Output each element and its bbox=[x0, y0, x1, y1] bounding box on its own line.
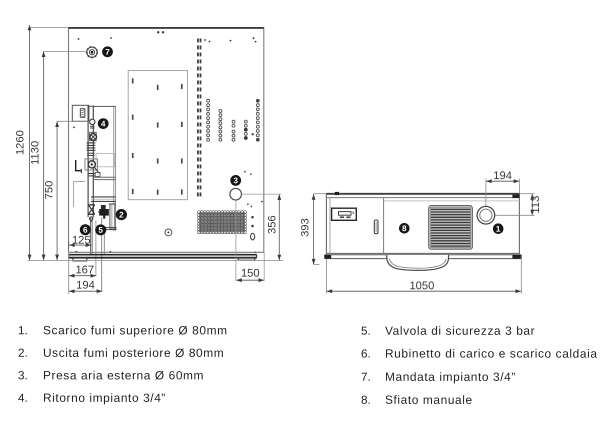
svg-text:Scarico fumi superiore Ø 80mm: Scarico fumi superiore Ø 80mm bbox=[43, 323, 228, 337]
svg-text:750: 750 bbox=[44, 181, 56, 200]
svg-text:113: 113 bbox=[530, 196, 542, 214]
svg-text:4.: 4. bbox=[18, 392, 28, 405]
svg-text:7: 7 bbox=[105, 48, 110, 57]
svg-text:1260: 1260 bbox=[14, 130, 26, 155]
svg-text:194: 194 bbox=[76, 280, 95, 292]
svg-text:393: 393 bbox=[300, 218, 312, 237]
svg-text:1: 1 bbox=[496, 225, 501, 234]
svg-text:3.: 3. bbox=[18, 369, 28, 382]
svg-text:2: 2 bbox=[119, 210, 124, 219]
svg-text:8.: 8. bbox=[361, 394, 371, 407]
svg-text:1130: 1130 bbox=[30, 141, 42, 165]
svg-text:6.: 6. bbox=[361, 348, 371, 361]
svg-text:194: 194 bbox=[493, 170, 512, 182]
svg-text:Presa aria esterna Ø 60mm: Presa aria esterna Ø 60mm bbox=[43, 368, 204, 382]
svg-text:125: 125 bbox=[72, 235, 91, 247]
svg-text:Uscita fumi posteriore Ø 80mm: Uscita fumi posteriore Ø 80mm bbox=[43, 346, 224, 360]
svg-text:Ritorno impianto 3/4”: Ritorno impianto 3/4” bbox=[43, 391, 166, 405]
svg-text:150: 150 bbox=[241, 268, 260, 280]
svg-text:2.: 2. bbox=[18, 347, 28, 360]
svg-text:4: 4 bbox=[101, 119, 106, 128]
svg-text:6: 6 bbox=[83, 226, 88, 235]
svg-text:Mandata impianto 3/4”: Mandata impianto 3/4” bbox=[385, 370, 516, 384]
svg-text:356: 356 bbox=[266, 215, 278, 234]
svg-text:Rubinetto di carico e scarico: Rubinetto di carico e scarico caldaia bbox=[385, 347, 598, 361]
svg-text:1050: 1050 bbox=[409, 280, 434, 292]
svg-text:167: 167 bbox=[75, 264, 94, 276]
svg-text:Sfiato manuale: Sfiato manuale bbox=[385, 393, 473, 407]
svg-text:3: 3 bbox=[233, 176, 238, 185]
svg-text:Valvola di sicurezza 3 bar: Valvola di sicurezza 3 bar bbox=[385, 324, 535, 338]
svg-text:1.: 1. bbox=[18, 324, 28, 337]
svg-text:5.: 5. bbox=[361, 325, 371, 338]
svg-text:8: 8 bbox=[402, 224, 407, 233]
svg-text:7.: 7. bbox=[361, 371, 371, 384]
svg-text:5: 5 bbox=[98, 226, 103, 235]
